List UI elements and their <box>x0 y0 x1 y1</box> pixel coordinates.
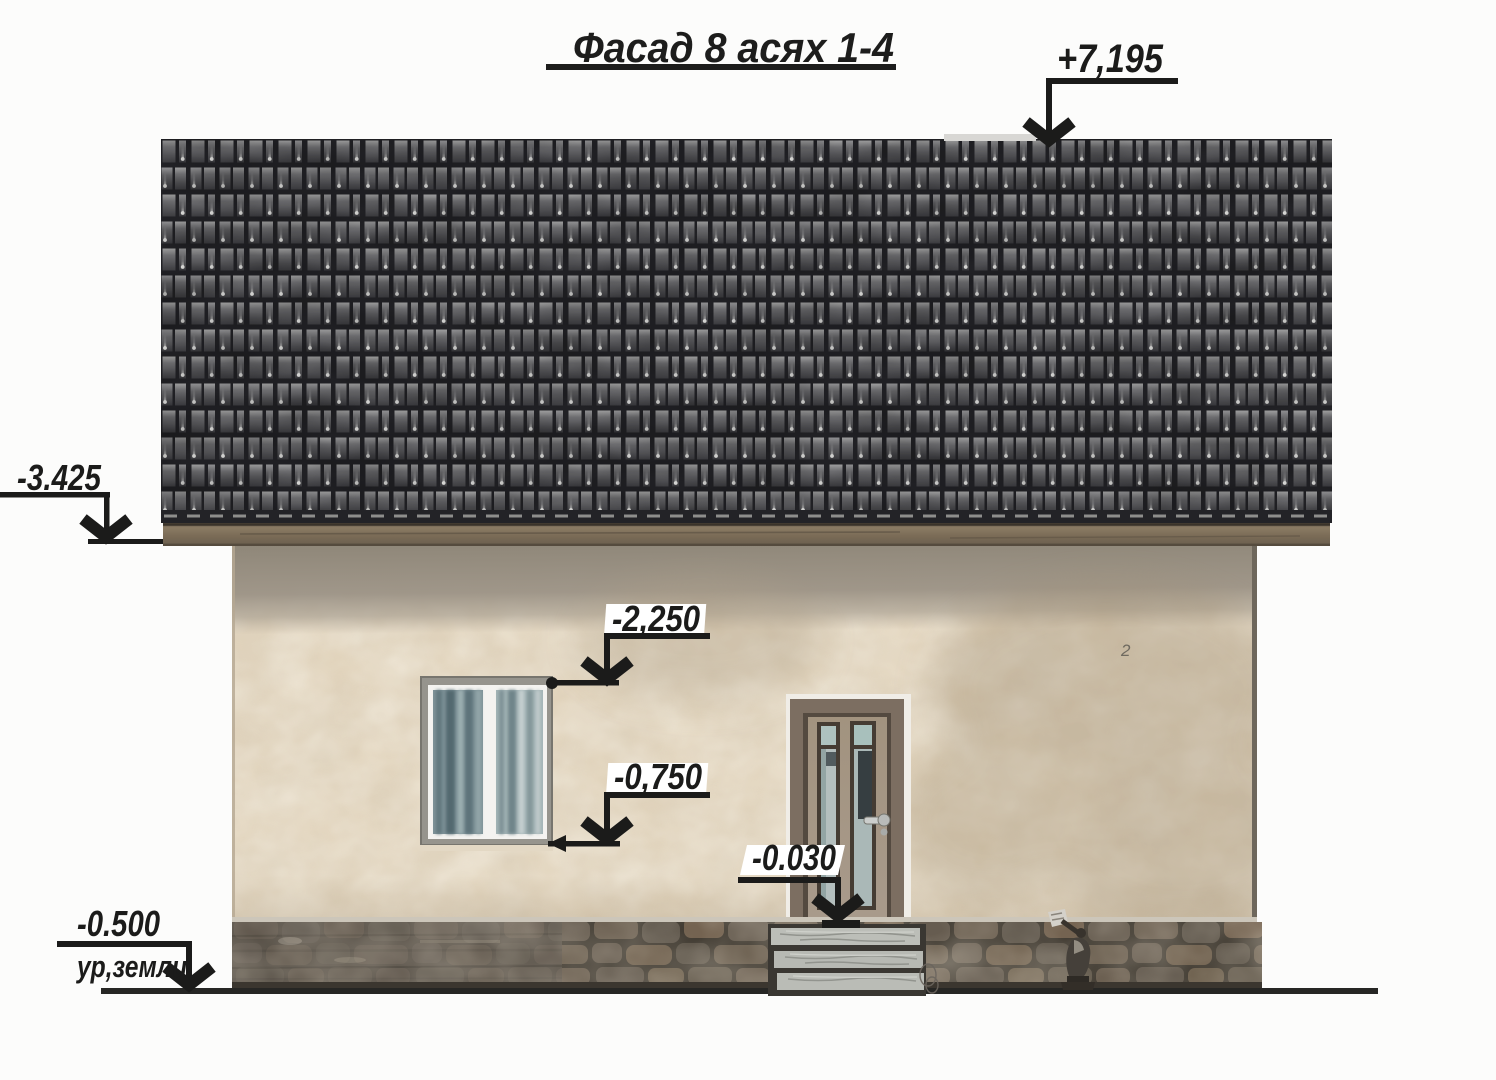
svg-text:-2,250: -2,250 <box>612 598 700 639</box>
svg-text:-0,750: -0,750 <box>614 756 702 797</box>
svg-text:-3.425: -3.425 <box>17 457 102 498</box>
svg-text:-0.030: -0.030 <box>752 837 836 878</box>
svg-text:-0.500: -0.500 <box>77 903 160 944</box>
svg-text:+7,195: +7,195 <box>1057 37 1164 81</box>
svg-text:Фасад 8 асях 1-4: Фасад 8 асях 1-4 <box>573 24 894 71</box>
svg-text:2: 2 <box>1120 641 1131 660</box>
svg-text:ур,земли: ур,земли <box>75 949 187 984</box>
